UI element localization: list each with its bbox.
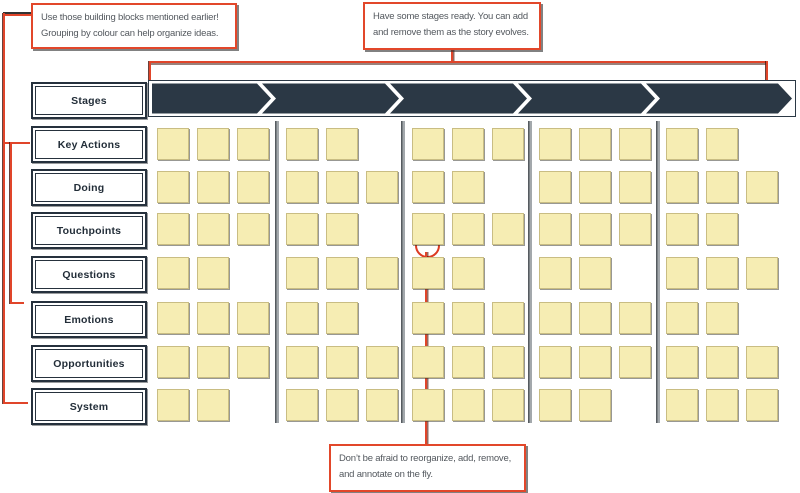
sticky-note[interactable] bbox=[452, 257, 484, 289]
sticky-note[interactable] bbox=[286, 346, 318, 378]
sticky-note[interactable] bbox=[539, 128, 571, 160]
sticky-note[interactable] bbox=[366, 171, 398, 203]
row-label-questions[interactable]: Questions bbox=[31, 256, 147, 293]
stages-bar bbox=[148, 80, 796, 117]
row-label-text: Emotions bbox=[64, 314, 113, 326]
sticky-note[interactable] bbox=[452, 171, 484, 203]
sticky-note[interactable] bbox=[237, 213, 269, 245]
sticky-note[interactable] bbox=[412, 346, 444, 378]
sticky-note[interactable] bbox=[492, 389, 524, 421]
sticky-note[interactable] bbox=[666, 302, 698, 334]
callout-text: Don’t be afraid to reorganize, add, remo… bbox=[339, 451, 516, 467]
sticky-note[interactable] bbox=[619, 302, 651, 334]
sticky-note[interactable] bbox=[237, 171, 269, 203]
row-label-key-actions[interactable]: Key Actions bbox=[31, 126, 147, 163]
sticky-note[interactable] bbox=[237, 302, 269, 334]
sticky-note[interactable] bbox=[286, 389, 318, 421]
sticky-note[interactable] bbox=[666, 346, 698, 378]
column-divider-1 bbox=[275, 121, 279, 423]
sticky-note[interactable] bbox=[286, 213, 318, 245]
connector-emotions-hook bbox=[10, 302, 24, 304]
sticky-note[interactable] bbox=[326, 128, 358, 160]
sticky-note[interactable] bbox=[452, 302, 484, 334]
sticky-note[interactable] bbox=[706, 213, 738, 245]
callout-text: Have some stages ready. You can add bbox=[373, 9, 531, 25]
connector-system-hook bbox=[3, 402, 28, 404]
sticky-note[interactable] bbox=[579, 302, 611, 334]
sticky-note[interactable] bbox=[746, 389, 778, 421]
row-label-text: Touchpoints bbox=[57, 225, 121, 237]
sticky-note[interactable] bbox=[579, 389, 611, 421]
sticky-note[interactable] bbox=[157, 257, 189, 289]
sticky-note[interactable] bbox=[412, 171, 444, 203]
row-label-system[interactable]: System bbox=[31, 388, 147, 425]
sticky-note[interactable] bbox=[366, 257, 398, 289]
sticky-note[interactable] bbox=[366, 389, 398, 421]
sticky-note[interactable] bbox=[539, 171, 571, 203]
callout-top-left[interactable]: Use those building blocks mentioned earl… bbox=[31, 3, 237, 49]
row-label-text: System bbox=[70, 401, 109, 413]
sticky-note[interactable] bbox=[412, 389, 444, 421]
sticky-note[interactable] bbox=[157, 302, 189, 334]
sticky-note[interactable] bbox=[157, 213, 189, 245]
callout-text: and annotate on the fly. bbox=[339, 467, 516, 483]
story-map-board: Use those building blocks mentioned earl… bbox=[0, 0, 800, 493]
sticky-note[interactable] bbox=[157, 389, 189, 421]
sticky-note[interactable] bbox=[579, 213, 611, 245]
connector-stages-bracket-right-drop bbox=[766, 61, 768, 80]
sticky-note[interactable] bbox=[539, 346, 571, 378]
stage-chevron-2[interactable] bbox=[262, 84, 399, 114]
sticky-note[interactable] bbox=[492, 128, 524, 160]
sticky-note[interactable] bbox=[666, 257, 698, 289]
row-label-stages[interactable]: Stages bbox=[31, 82, 147, 119]
sticky-note[interactable] bbox=[706, 389, 738, 421]
sticky-note[interactable] bbox=[237, 346, 269, 378]
sticky-note[interactable] bbox=[452, 346, 484, 378]
sticky-note[interactable] bbox=[619, 128, 651, 160]
sticky-note[interactable] bbox=[666, 128, 698, 160]
callout-text: Grouping by colour can help organize ide… bbox=[41, 26, 227, 42]
connector-left-inner-vertical bbox=[10, 142, 12, 304]
sticky-note[interactable] bbox=[197, 213, 229, 245]
connector-left-callout-line bbox=[3, 12, 32, 16]
sticky-note[interactable] bbox=[666, 213, 698, 245]
row-label-text: Opportunities bbox=[53, 358, 124, 370]
sticky-note[interactable] bbox=[412, 128, 444, 160]
sticky-note[interactable] bbox=[157, 171, 189, 203]
sticky-note[interactable] bbox=[492, 346, 524, 378]
sticky-note[interactable] bbox=[539, 302, 571, 334]
sticky-note[interactable] bbox=[619, 171, 651, 203]
stage-chevron-5[interactable] bbox=[646, 84, 792, 114]
sticky-note[interactable] bbox=[412, 257, 444, 289]
sticky-note[interactable] bbox=[619, 213, 651, 245]
sticky-note[interactable] bbox=[326, 346, 358, 378]
sticky-note[interactable] bbox=[746, 171, 778, 203]
callout-top-right[interactable]: Have some stages ready. You can add and … bbox=[363, 2, 541, 50]
sticky-note[interactable] bbox=[579, 257, 611, 289]
stage-chevron-3[interactable] bbox=[390, 84, 527, 114]
row-label-text: Key Actions bbox=[58, 139, 121, 151]
sticky-note[interactable] bbox=[286, 171, 318, 203]
sticky-note[interactable] bbox=[197, 302, 229, 334]
sticky-note[interactable] bbox=[666, 389, 698, 421]
sticky-note[interactable] bbox=[706, 171, 738, 203]
sticky-note[interactable] bbox=[366, 346, 398, 378]
sticky-note[interactable] bbox=[286, 128, 318, 160]
sticky-note[interactable] bbox=[326, 389, 358, 421]
sticky-note[interactable] bbox=[706, 128, 738, 160]
column-divider-3 bbox=[528, 121, 532, 423]
sticky-note[interactable] bbox=[197, 257, 229, 289]
sticky-note[interactable] bbox=[197, 346, 229, 378]
sticky-note[interactable] bbox=[452, 213, 484, 245]
column-divider-4 bbox=[656, 121, 660, 423]
sticky-note[interactable] bbox=[412, 213, 444, 245]
sticky-note[interactable] bbox=[746, 257, 778, 289]
sticky-note[interactable] bbox=[237, 128, 269, 160]
sticky-note[interactable] bbox=[579, 171, 611, 203]
sticky-note[interactable] bbox=[619, 346, 651, 378]
row-label-text: Stages bbox=[71, 95, 107, 107]
stage-chevron-4[interactable] bbox=[518, 84, 655, 114]
sticky-note[interactable] bbox=[539, 257, 571, 289]
sticky-note[interactable] bbox=[579, 128, 611, 160]
sticky-note[interactable] bbox=[539, 389, 571, 421]
sticky-note[interactable] bbox=[197, 128, 229, 160]
row-label-text: Doing bbox=[74, 182, 105, 194]
connector-key-actions-stub bbox=[3, 142, 30, 144]
sticky-note[interactable] bbox=[286, 302, 318, 334]
sticky-note[interactable] bbox=[286, 257, 318, 289]
connector-stages-bracket bbox=[149, 61, 768, 63]
callout-bottom[interactable]: Don’t be afraid to reorganize, add, remo… bbox=[329, 444, 526, 492]
sticky-note[interactable] bbox=[706, 257, 738, 289]
sticky-note[interactable] bbox=[197, 389, 229, 421]
sticky-note[interactable] bbox=[157, 128, 189, 160]
sticky-note[interactable] bbox=[706, 302, 738, 334]
sticky-note[interactable] bbox=[492, 213, 524, 245]
sticky-note[interactable] bbox=[326, 171, 358, 203]
sticky-note[interactable] bbox=[157, 346, 189, 378]
sticky-note[interactable] bbox=[197, 171, 229, 203]
sticky-note[interactable] bbox=[746, 346, 778, 378]
row-label-touchpoints[interactable]: Touchpoints bbox=[31, 212, 147, 249]
row-label-text: Questions bbox=[62, 269, 115, 281]
sticky-note[interactable] bbox=[666, 171, 698, 203]
sticky-note[interactable] bbox=[412, 302, 444, 334]
sticky-note[interactable] bbox=[539, 213, 571, 245]
column-divider-2 bbox=[401, 121, 405, 423]
connector-stages-bracket-left-drop bbox=[149, 61, 151, 80]
sticky-note[interactable] bbox=[452, 128, 484, 160]
stage-chevron-1[interactable] bbox=[152, 84, 271, 114]
connector-left-outer-vertical bbox=[3, 13, 5, 404]
sticky-note[interactable] bbox=[326, 257, 358, 289]
callout-text: Use those building blocks mentioned earl… bbox=[41, 10, 227, 26]
callout-text: and remove them as the story evolves. bbox=[373, 25, 531, 41]
sticky-note[interactable] bbox=[452, 389, 484, 421]
sticky-note[interactable] bbox=[326, 302, 358, 334]
sticky-note[interactable] bbox=[492, 302, 524, 334]
sticky-note[interactable] bbox=[326, 213, 358, 245]
sticky-note[interactable] bbox=[579, 346, 611, 378]
row-label-emotions[interactable]: Emotions bbox=[31, 301, 147, 338]
row-label-doing[interactable]: Doing bbox=[31, 169, 147, 206]
sticky-note[interactable] bbox=[706, 346, 738, 378]
row-label-opportunities[interactable]: Opportunities bbox=[31, 345, 147, 382]
